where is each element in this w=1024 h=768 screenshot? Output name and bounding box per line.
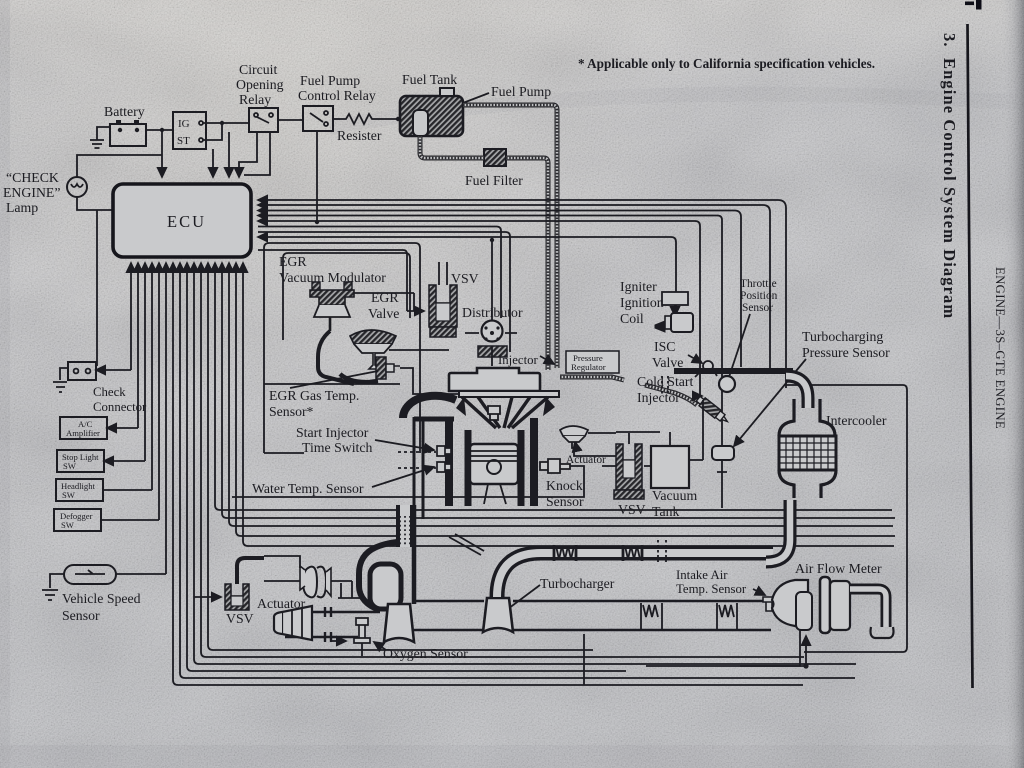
svg-text:Cold Start: Cold Start [637,374,694,389]
svg-text:Fuel Tank: Fuel Tank [402,72,457,87]
svg-text:Time Switch: Time Switch [302,440,373,455]
svg-text:Fuel Pump: Fuel Pump [491,84,551,99]
svg-text:Ignition: Ignition [620,295,664,310]
svg-text:Coil: Coil [620,311,644,326]
svg-text:Fuel Filter: Fuel Filter [465,173,523,188]
svg-text:EGR Gas Temp.: EGR Gas Temp. [269,388,359,403]
svg-text:Position: Position [740,290,778,302]
svg-text:* Applicable only to Californi: * Applicable only to California specific… [578,56,875,71]
svg-text:Sensor: Sensor [742,302,773,314]
svg-text:Connector: Connector [93,400,147,414]
svg-text:SW: SW [62,490,76,500]
svg-text:3. Engine Control System Diag: 3. Engine Control System Diagram [940,33,959,319]
svg-text:VSV: VSV [226,611,254,626]
svg-text:Igniter: Igniter [620,279,657,294]
svg-text:Valve: Valve [368,306,399,321]
svg-text:Injector: Injector [637,390,680,405]
svg-text:VSV: VSV [451,271,479,286]
svg-text:Temp. Sensor: Temp. Sensor [676,582,747,596]
svg-text:Sensor: Sensor [62,608,100,623]
svg-text:Actuator: Actuator [257,596,306,611]
svg-text:ECU: ECU [167,212,206,231]
svg-text:Lamp: Lamp [6,200,38,215]
svg-text:Regulator: Regulator [571,362,606,372]
svg-text:Knock: Knock [546,478,583,493]
svg-text:VSV: VSV [618,502,646,517]
svg-text:Oxygen Sensor: Oxygen Sensor [383,646,468,661]
svg-text:ST: ST [177,135,190,147]
svg-text:Circuit: Circuit [239,62,277,77]
svg-text:Water Temp. Sensor: Water Temp. Sensor [252,481,364,496]
svg-text:Opening: Opening [236,77,284,92]
svg-text:Check: Check [93,385,126,399]
svg-text:IG: IG [178,118,190,130]
svg-text:Start Injector: Start Injector [296,425,369,440]
svg-text:Valve: Valve [652,355,683,370]
svg-text:ISC: ISC [654,339,675,354]
svg-text:Battery: Battery [104,104,145,119]
svg-text:Turbocharging: Turbocharging [802,329,883,344]
svg-text:Tank: Tank [652,504,679,519]
svg-text:“CHECK: “CHECK [6,170,59,185]
svg-text:Turbocharger: Turbocharger [540,576,615,591]
svg-text:ENGINE”: ENGINE” [3,185,60,200]
svg-text:Relay: Relay [239,92,271,107]
svg-text:Amplifier: Amplifier [66,428,100,438]
svg-text:Intercooler: Intercooler [826,413,887,428]
svg-text:Vehicle Speed: Vehicle Speed [62,591,141,606]
svg-text:Intake Air: Intake Air [676,568,728,582]
svg-text:Sensor*: Sensor* [269,404,314,419]
svg-text:ENGINE—3S–GTE ENGINE: ENGINE—3S–GTE ENGINE [993,267,1007,429]
svg-text:Pressure Sensor: Pressure Sensor [802,345,890,360]
svg-text:Resister: Resister [337,128,382,143]
svg-text:Injector: Injector [498,353,539,367]
svg-text:Air Flow Meter: Air Flow Meter [795,561,882,576]
svg-text:SW: SW [63,461,77,471]
svg-text:EGR: EGR [279,254,307,269]
svg-text:Vacuum: Vacuum [652,488,697,503]
svg-text:Control Relay: Control Relay [298,88,376,103]
svg-text:SW: SW [61,520,75,530]
svg-text:Fuel Pump: Fuel Pump [300,73,360,88]
svg-text:Throttle: Throttle [740,278,777,290]
svg-text:Vacuum Modulator: Vacuum Modulator [279,270,386,285]
